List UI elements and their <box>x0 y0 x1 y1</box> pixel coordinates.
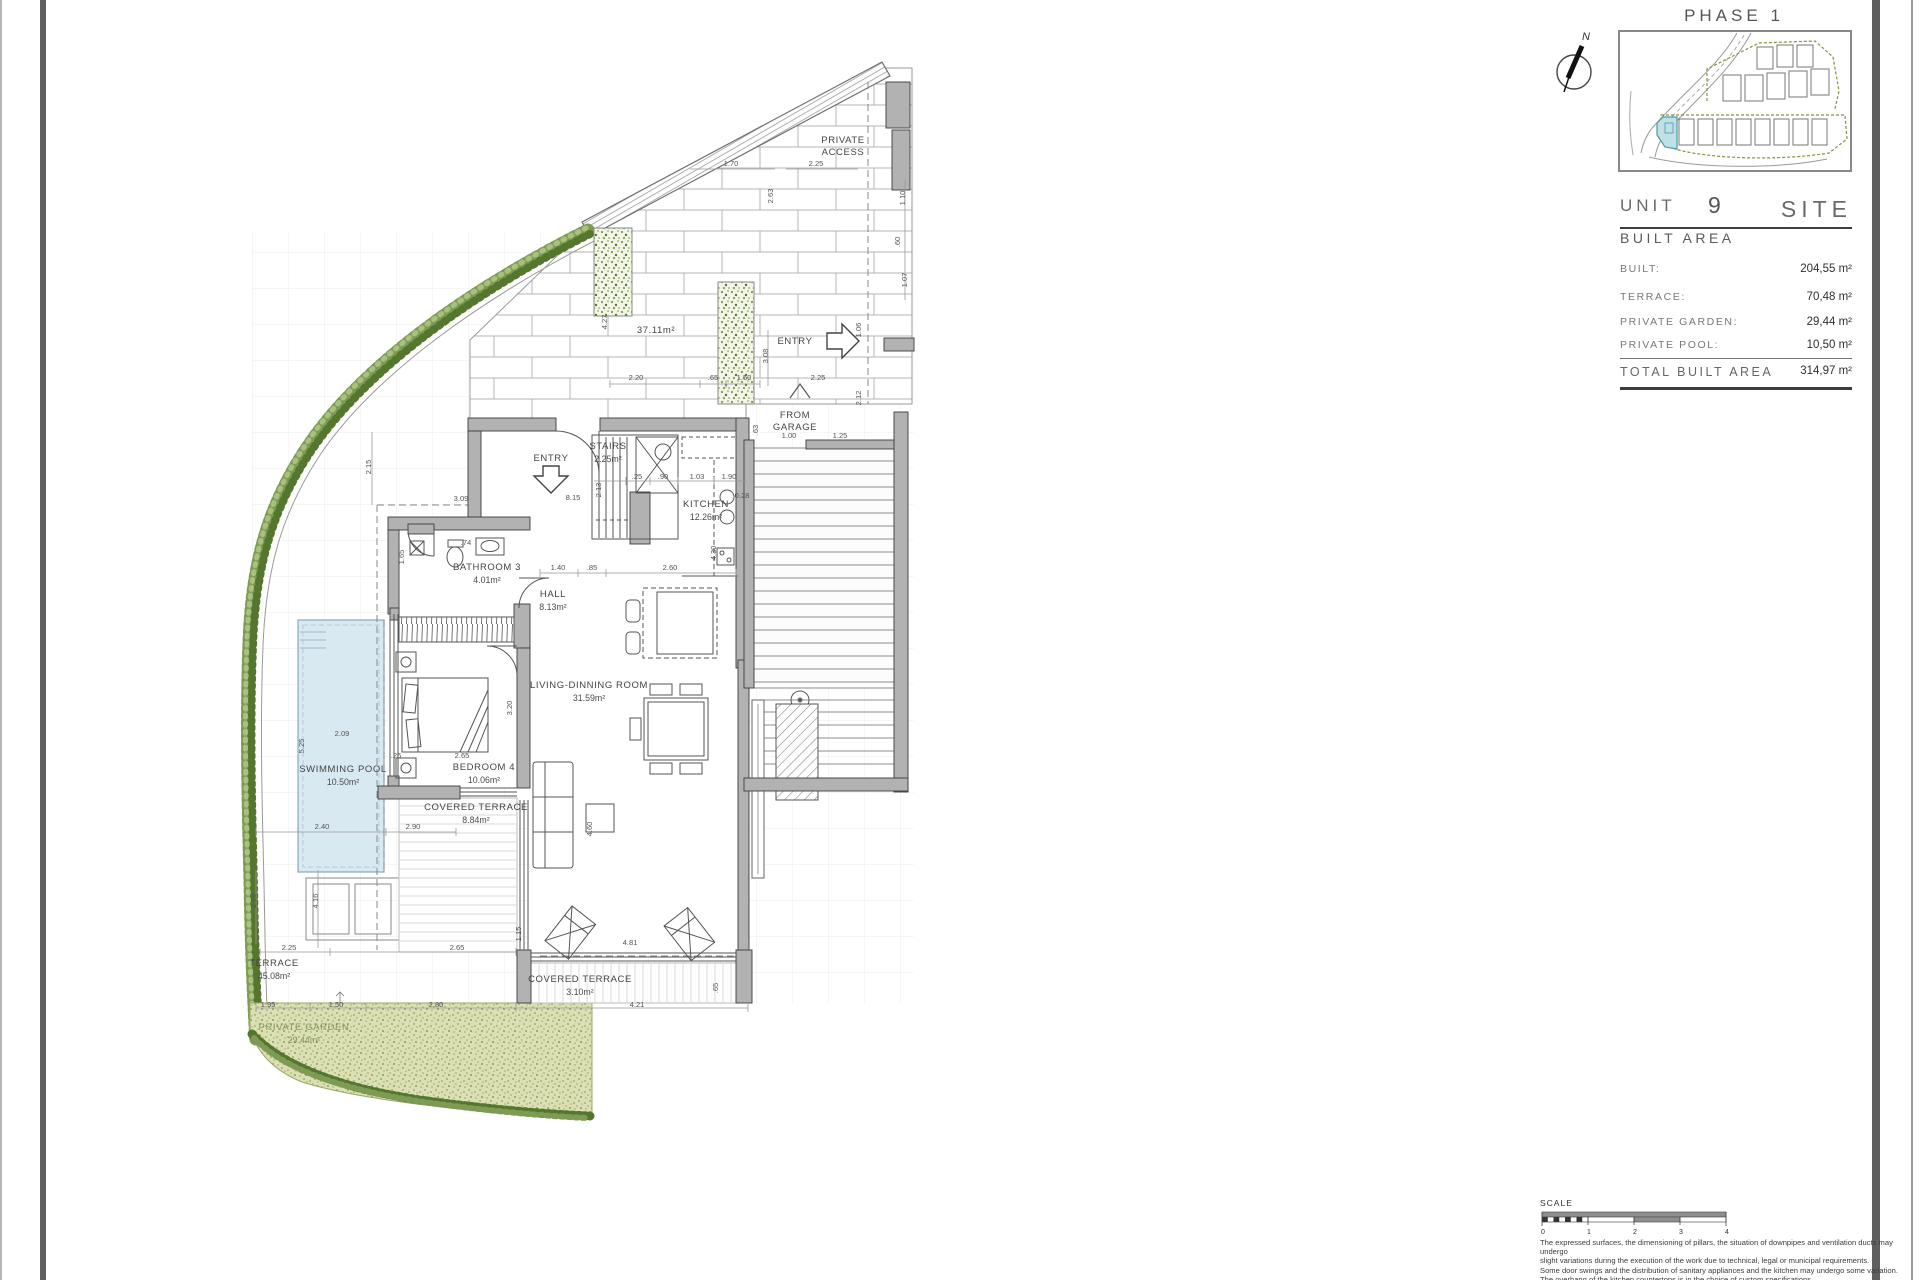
scale-tick: 0 <box>1541 1229 1545 1236</box>
dimension-label: 2.15 <box>364 460 373 475</box>
dimension-label: 4.60 <box>585 822 594 837</box>
unit-label: UNIT <box>1620 196 1676 215</box>
built-area-title: BUILT AREA <box>1620 230 1735 246</box>
dimension-label: 2.25 <box>282 943 297 952</box>
plan-label: STAIRS <box>589 441 626 452</box>
dimension-label: 1.50 <box>737 373 752 382</box>
dimension-label: 2.12 <box>854 391 863 406</box>
scale-label: SCALE <box>1540 1198 1910 1208</box>
plan-label: COVERED TERRACE <box>424 802 528 813</box>
plan-label: 3.10m² <box>566 987 593 997</box>
dimension-label: 4.16 <box>311 894 320 909</box>
plan-label: 8.13m² <box>539 602 566 612</box>
plan-label: PRIVATE GARDEN <box>259 1022 350 1033</box>
dimension-label: 1.50 <box>329 1000 344 1009</box>
dimension-label: .60 <box>893 237 902 248</box>
plan-label: 4.01m² <box>473 575 500 585</box>
scale-tick: 3 <box>1679 1229 1683 1236</box>
plan-label: HALL <box>540 589 566 600</box>
plan-label: SWIMMING POOL <box>299 764 387 775</box>
dimension-label: 2.65 <box>450 943 465 952</box>
dimension-label: .74 <box>461 538 472 547</box>
dimension-label: 1.10 <box>898 191 907 206</box>
dimension-label: 1.70 <box>724 159 739 168</box>
dimension-label: 1.90 <box>722 472 737 481</box>
dimension-label: 2.80 <box>429 1000 444 1009</box>
scale-tick: 4 <box>1725 1229 1729 1236</box>
site-map-inset <box>1618 30 1852 172</box>
unit-site-row: UNIT 9 SITE <box>1620 196 1852 229</box>
wardrobe <box>399 617 514 642</box>
dimension-label: 0.28 <box>735 491 750 500</box>
plan-label: 2.25m² <box>594 454 621 464</box>
compass: N <box>1548 26 1604 104</box>
dimension-label: .26 <box>391 751 402 760</box>
private-garden <box>250 1003 592 1118</box>
plan-label: ACCESS <box>822 147 865 158</box>
area-row-built: BUILT: 204,55 m² <box>1620 263 1852 275</box>
plan-label: ENTRY <box>777 336 812 347</box>
dimension-label: .90 <box>658 472 669 481</box>
dimension-label: 4.21 <box>630 1000 645 1009</box>
plan-label: FROM <box>780 410 810 421</box>
dimension-label: 8.15 <box>566 493 581 502</box>
unit-number: 9 <box>1708 192 1723 219</box>
dimension-label: 2.09 <box>335 729 350 738</box>
dimension-label: 2.25 <box>811 373 826 382</box>
plan-label: 37.11m² <box>637 325 675 336</box>
dimension-label: 3.08 <box>761 349 770 364</box>
scale-bar: 01234 <box>1540 1210 1740 1236</box>
dimension-label: 1.40 <box>551 563 566 572</box>
plan-label: TERRACE <box>249 958 299 969</box>
dimension-label: .63 <box>751 425 760 436</box>
plan-label: 10.06m² <box>468 775 500 785</box>
scale-block: SCALE 01234 <box>1540 1198 1910 1241</box>
dimension-label: .25 <box>632 472 643 481</box>
dimension-label: .85 <box>587 563 598 572</box>
dimension-label: 2.65 <box>455 751 470 760</box>
site-label: SITE <box>1781 196 1852 223</box>
plan-label: 29.44m² <box>288 1035 320 1045</box>
dimension-label: 1.00 <box>782 431 797 440</box>
scale-tick: 2 <box>1633 1229 1637 1236</box>
title-block: PHASE 1 N <box>1540 0 1900 1280</box>
dimension-label: 2.60 <box>663 563 678 572</box>
plan-label: 31.59m² <box>573 693 605 703</box>
dimension-label: .65 <box>711 983 720 994</box>
dimension-label: 2.13 <box>594 483 603 498</box>
dimension-label: 1.03 <box>690 472 705 481</box>
phase-title: PHASE 1 <box>1618 6 1850 26</box>
dimension-label: 1.65 <box>397 550 406 565</box>
dimension-label: 3.09 <box>454 494 469 503</box>
plan-label: COVERED TERRACE <box>528 974 632 985</box>
dimension-label: 1.07 <box>900 273 909 288</box>
scale-tick: 1 <box>1587 1229 1591 1236</box>
plan-label: PRIVATE <box>821 135 864 146</box>
plan-label: BATHROOM 3 <box>453 562 521 573</box>
plan-label: KITCHEN <box>683 499 729 510</box>
dimension-label: 2.20 <box>629 373 644 382</box>
area-row-private-garden: PRIVATE GARDEN: 29,44 m² <box>1620 316 1852 328</box>
dimension-label: 2.90 <box>406 822 421 831</box>
swimming-pool <box>298 620 384 872</box>
plan-label: 45.08m² <box>258 971 290 981</box>
dimension-label: 2.25 <box>809 159 824 168</box>
dimension-label: 1.95 <box>261 1000 276 1009</box>
dimension-label: .65 <box>708 373 719 382</box>
plan-label: 8.84m² <box>462 815 489 825</box>
plan-label: 12.26m² <box>690 512 722 522</box>
drawing-sheet: STAIRS2.25m²KITCHEN12.26m²BATHROOM 34.01… <box>0 0 1920 1280</box>
dimension-label: 1.25 <box>833 431 848 440</box>
plan-label: 10.50m² <box>327 777 359 787</box>
dimension-label: 2.63 <box>766 189 775 204</box>
plan-label: BEDROOM 4 <box>453 762 515 773</box>
dimension-label: 2.40 <box>315 822 330 831</box>
area-row-terrace: TERRACE: 70,48 m² <box>1620 291 1852 303</box>
dimension-label: 5.25 <box>297 739 306 754</box>
dimension-label: 4.27 <box>600 315 609 330</box>
area-row-private-pool: PRIVATE POOL: 10,50 m² <box>1620 339 1852 351</box>
plan-label: LIVING-DINNING ROOM <box>530 680 648 691</box>
compass-north-letter: N <box>1582 31 1590 43</box>
total-built-area-row: TOTAL BUILT AREA 314,97 m² <box>1620 358 1852 390</box>
dimension-label: 4.30 <box>709 546 718 561</box>
disclaimer-text: The expressed surfaces, the dimensioning… <box>1540 1238 1912 1280</box>
plan-label: ENTRY <box>533 453 568 464</box>
dimension-label: 3.20 <box>505 701 514 716</box>
dimension-label: 1.69 <box>249 894 258 909</box>
dimension-label: 1.06 <box>854 323 863 338</box>
dimension-label: 4.81 <box>623 938 638 947</box>
dimension-label: 1.15 <box>514 927 523 942</box>
